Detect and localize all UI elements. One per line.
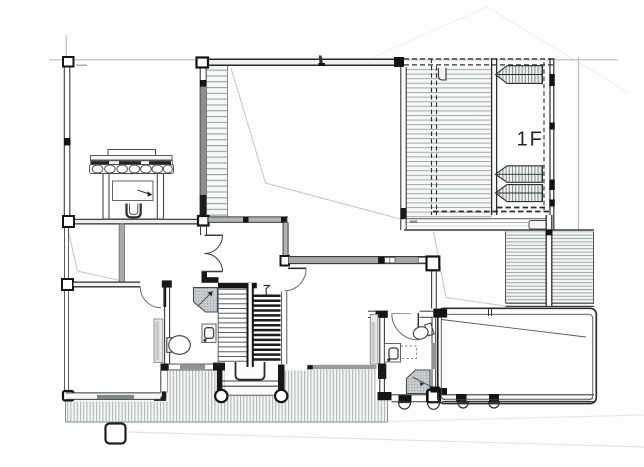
svg-text:1F: 1F [517, 129, 544, 151]
